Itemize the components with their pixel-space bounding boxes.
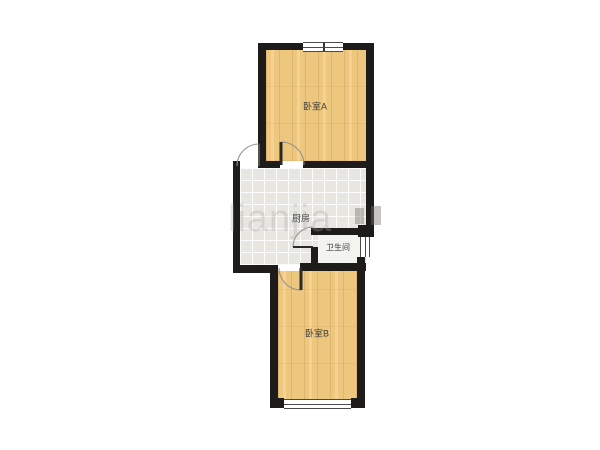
- label-bedroom-b: 卧室B: [305, 330, 329, 339]
- door-entry: [237, 144, 259, 166]
- door-bedroom-a: [281, 142, 304, 165]
- door-layer: [0, 0, 600, 450]
- label-bathroom: 卫生间: [326, 244, 350, 252]
- door-bedroom-b: [279, 268, 301, 290]
- label-kitchen: 厨房: [292, 215, 310, 224]
- label-bedroom-a: 卧室A: [303, 103, 327, 112]
- door-bathroom: [293, 227, 313, 247]
- floor-plan: 卧室A 厨房 卫生间 卧室B lianjia: [0, 0, 600, 450]
